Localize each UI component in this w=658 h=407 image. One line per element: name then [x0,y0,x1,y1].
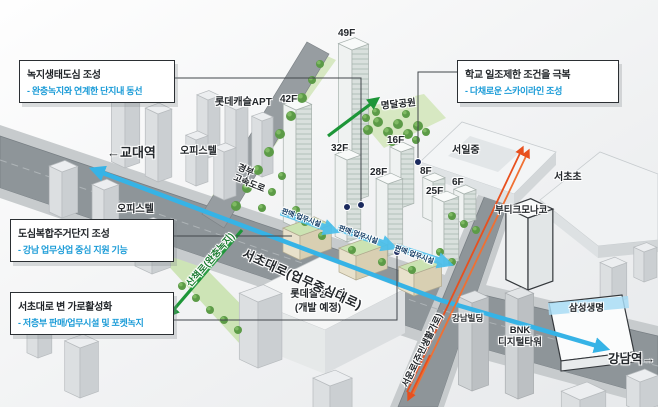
station-label-gangnam: 강남역→ [608,352,655,368]
station-label-gyodae: ←교대역 [107,145,156,161]
callout-desc: - 완충녹지와 연계한 단지내 동선 [27,84,167,97]
floor-label-25f: 25F [426,186,443,199]
dot-1 [358,202,365,209]
floor-label-16f: 16F [387,135,404,148]
callout-desc: - 다채로운 스카이라인 조성 [465,84,611,97]
floor-label-42f: 42F [280,94,297,107]
label-seoil-middle-school: 서일중 [452,145,480,158]
floor-label-6f: 6F [452,177,464,190]
label-officetel-2: 오피스텔 [117,204,154,217]
callout-mixed-use-housing: 도심복합주거단지 조성 - 강남 업무상업 중심 지원 기능 [10,219,174,262]
callout-desc: - 강남 업무상업 중심 지원 기능 [18,243,166,256]
label-gangnam-building: 강남빌딩 [452,313,483,324]
callout-desc: - 저층부 판매/업무시설 및 포켓녹지 [18,316,166,329]
label-lotte-castle-apt: 롯데캐슬APT [215,97,272,110]
label-officetel-1: 오피스텔 [180,146,217,159]
callout-title: 도심복합주거단지 조성 [18,225,166,240]
label-boutique-monaco: 부티크모나코 [495,205,547,217]
callout-title: 학교 일조제한 조건을 극복 [465,66,611,81]
callout-school-sunlight: 학교 일조제한 조건을 극복 - 다채로운 스카이라인 조성 [457,60,619,103]
floor-label-8f: 8F [420,166,432,179]
callout-street-activation: 서초대로 변 가로활성화 - 저층부 판매/업무시설 및 포켓녹지 [10,292,174,335]
dot-4 [344,204,351,211]
dot-2 [415,159,422,166]
urban-plan-infographic: ←교대역 강남역→ 롯데캐슬APT 오피스텔 오피스텔 명달공원 서일중 서초초… [0,0,658,407]
callout-green-ecological-city: 녹지생태도심 조성 - 완충녹지와 연계한 단지내 동선 [19,60,175,103]
label-samsung-life: 삼성생명 [569,303,604,315]
floor-label-28f: 28F [370,167,387,180]
floor-label-49f: 49F [338,28,355,41]
label-seocho-elementary: 서초초 [554,172,582,185]
floor-label-32f: 32F [331,143,348,156]
label-bnk-digital-tower: BNK 디지털타워 [487,325,553,349]
callout-title: 녹지생태도심 조성 [27,66,167,81]
callout-title: 서초대로 변 가로활성화 [18,298,166,313]
